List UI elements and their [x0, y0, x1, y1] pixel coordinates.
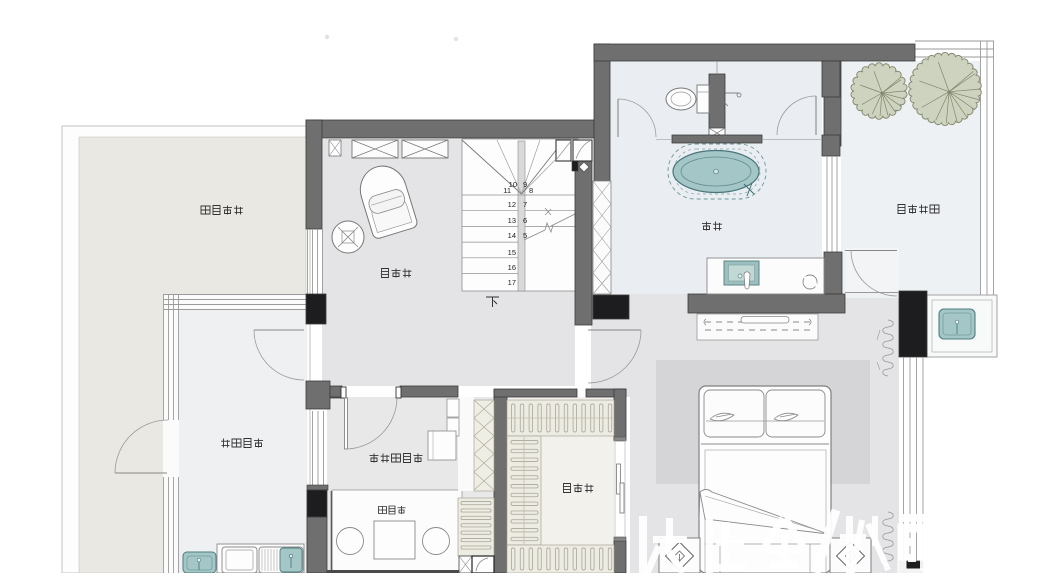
svg-text:7: 7	[523, 200, 527, 209]
svg-text:8: 8	[529, 186, 533, 195]
svg-text:17: 17	[508, 278, 516, 287]
svg-text:14: 14	[508, 231, 516, 240]
svg-text:9: 9	[523, 180, 527, 189]
svg-text:15: 15	[508, 248, 516, 257]
svg-text:10: 10	[509, 180, 517, 189]
svg-text:5: 5	[523, 231, 527, 240]
svg-text:16: 16	[508, 263, 516, 272]
svg-text:6: 6	[523, 216, 527, 225]
svg-text:13: 13	[508, 216, 516, 225]
svg-text:12: 12	[508, 200, 516, 209]
